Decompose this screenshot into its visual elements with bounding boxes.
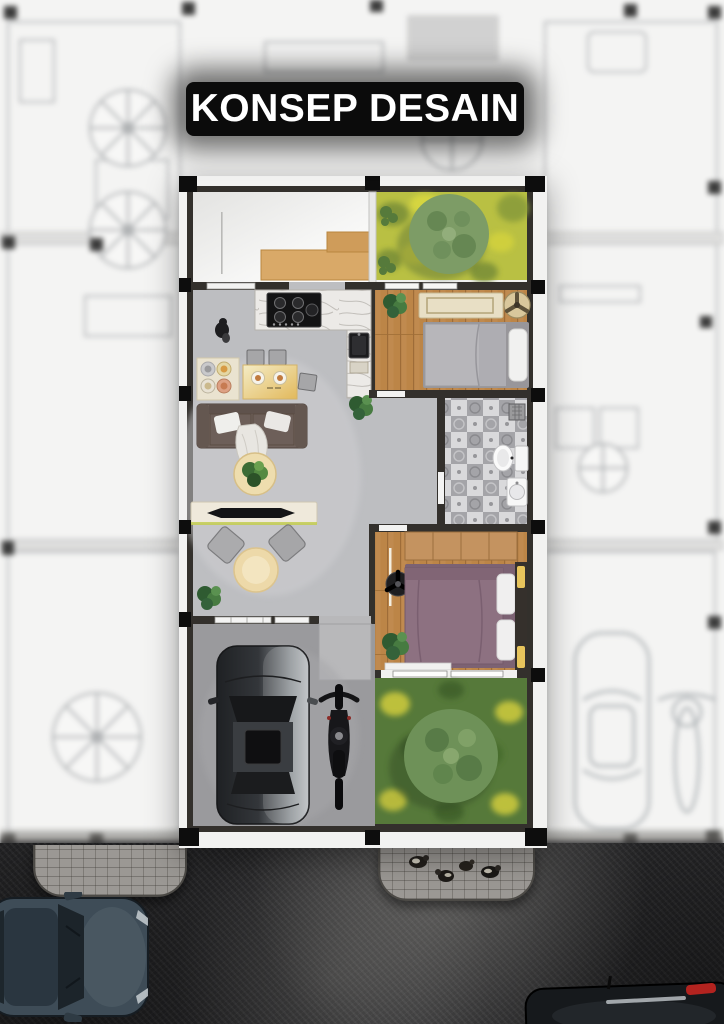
chicken <box>481 865 501 878</box>
pillow <box>497 620 515 660</box>
headboard-light <box>517 646 525 668</box>
pillow <box>497 574 515 614</box>
bedroom1-single-bed <box>423 322 529 388</box>
gas-stove <box>267 293 321 327</box>
front-boundary-wall <box>179 826 547 848</box>
cad-motorcycle-symbol <box>658 694 716 812</box>
street-car-driving <box>0 892 160 1022</box>
page-title: KONSEP DESAIN <box>191 87 520 131</box>
front-garden <box>375 192 529 282</box>
service-area <box>193 192 369 284</box>
dining-chair <box>269 350 286 365</box>
floor-mat-with-plates <box>197 358 239 400</box>
chicken <box>459 860 475 872</box>
carport-car <box>207 646 318 824</box>
wash-basin <box>507 478 527 506</box>
tv-console <box>191 502 317 525</box>
shower-drain <box>509 404 525 420</box>
dining-chair <box>298 373 317 391</box>
chicken <box>409 855 429 868</box>
toilet <box>493 445 528 471</box>
tv-soundbar <box>207 508 295 518</box>
title-banner: KONSEP DESAIN <box>186 82 524 136</box>
chicken <box>435 869 454 882</box>
floor-plan-poster: KONSEP DESAIN <box>0 0 724 1024</box>
door-mat <box>385 663 451 670</box>
wall-mid-lower <box>369 390 527 398</box>
wall-mid-upper <box>193 282 527 290</box>
coffee-table <box>234 453 276 495</box>
rendered-floor-plan <box>179 176 547 848</box>
chickens-group <box>388 846 548 902</box>
cutting-board <box>350 362 368 373</box>
bedroom-1 <box>375 290 530 390</box>
rear-garden <box>375 678 527 824</box>
bedroom1-ceiling-fan <box>504 292 530 318</box>
bedroom-2 <box>375 532 527 670</box>
pillow <box>509 329 527 381</box>
headboard-light <box>517 566 525 588</box>
wood-counter <box>261 250 369 280</box>
dining-chair <box>247 350 264 365</box>
round-side-table <box>234 548 278 592</box>
bedroom1-cabinet <box>419 293 503 318</box>
dining-table <box>243 365 297 399</box>
street-car-parked-partial <box>522 976 724 1024</box>
bathroom <box>437 398 528 524</box>
wall-rear-garden-top <box>369 670 527 678</box>
carport <box>193 624 375 826</box>
wall-living-bottom <box>193 616 375 624</box>
paver-apron-left <box>33 845 187 897</box>
bedroom2-double-bed <box>405 562 527 670</box>
cad-car-symbol <box>575 633 649 829</box>
bathroom-door <box>438 472 444 504</box>
kitchen-sink <box>349 333 369 358</box>
